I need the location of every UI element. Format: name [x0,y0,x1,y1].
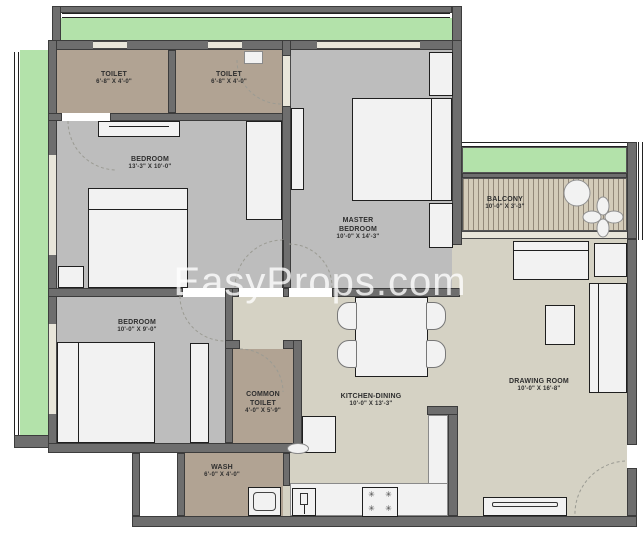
outer-wall-right-b [627,468,637,516]
toilets-bottom-wall-a [48,113,62,121]
room-label-master-bedroom: MASTER BEDROOM 10'-0" X 14'-3" [326,216,390,242]
wardrobe-2 [190,343,209,443]
sofa-long [589,283,627,393]
wash-outer-wall [132,453,140,516]
room-name: COMMON TOILET [237,390,289,408]
toilet-2-door-opening [282,56,291,106]
toilet-divider-wall [168,50,176,113]
wash-basin [287,443,309,454]
room-dims: 6'-8" X 4'-0" [96,79,132,87]
nightstand [58,266,84,288]
toilets-bottom-wall-b [110,113,285,121]
room-label-toilet-2: TOILET 6'-8" X 4'-0" [211,70,247,87]
room-label-toilet-1: TOILET 6'-8" X 4'-0" [96,70,132,87]
dining-chair [426,302,446,330]
master-nightstand-bottom [429,203,453,248]
washing-machine [248,487,281,516]
tv-unit [483,497,567,516]
room-dims: 10'-0" X 13'-3" [321,401,421,409]
dining-table [355,297,428,377]
room-name: KITCHEN-DINING [321,392,421,401]
room-label-drawing-room: DRAWING ROOM 10'-0" X 16'-8" [484,377,594,394]
room-label-bedroom-1: BEDROOM 13'-3" X 10'-0" [129,155,172,172]
balcony-garden-strip [462,147,627,173]
room-label-bedroom-2: BEDROOM 10'-0" X 9'-0" [117,318,156,335]
room-label-kitchen-dining: KITCHEN-DINING 10'-0" X 13'-3" [321,392,421,409]
bedroom2-bottom-wall [48,443,302,453]
room-name: BALCONY [485,195,524,204]
common-toilet-right-wall [293,340,302,452]
terrace-left-railing [14,52,19,435]
bedroom1-bedroom2-wall [48,288,183,297]
toilet-shelf [244,51,263,64]
terrace-garden-top [61,18,452,40]
wash-channel-wall [177,453,185,516]
master-right-wall [452,40,462,245]
common-toilet-top-wall-a [225,340,240,349]
dining-chair [337,302,357,330]
room-dims: 6'-0" X 4'-0" [204,472,240,480]
kitchen-drawing-wall-cap [427,406,458,415]
burner-icon: ✳ [385,491,392,499]
balcony-outer-railing [638,142,643,240]
main-door-opening [627,445,637,468]
wardrobe [246,121,282,220]
master-bed [352,98,452,201]
terrace-top-wall [60,6,452,13]
room-name: MASTER BEDROOM [326,216,390,234]
bedroom-1-window [48,155,57,255]
toilet-1-window [93,41,127,49]
master-nightstand-top [429,52,453,96]
outer-wall-bottom [132,516,637,527]
burner-icon: ✳ [368,505,375,513]
room-name: TOILET [96,70,132,79]
room-label-balcony: BALCONY 10'-0" X 3'-3" [485,195,524,212]
armchair [594,243,627,277]
room-name: DRAWING ROOM [484,377,594,386]
bedroom1-master-wall-a [282,40,291,56]
room-dims: 6'-8" X 4'-0" [211,79,247,87]
coffee-table [545,305,575,345]
room-dims: 13'-3" X 10'-0" [129,164,172,172]
dresser [98,121,180,137]
bed-2 [57,342,155,443]
master-bedroom-window [317,41,420,49]
wash-kitchen-wall [283,453,290,486]
dining-chair [337,340,357,368]
room-label-wash: WASH 6'-0" X 4'-0" [204,463,240,480]
room-dims: 10'-0" X 14'-3" [326,234,390,242]
burner-icon: ✳ [368,491,375,499]
floor-plan: ✳ ✳ ✳ ✳ TOILET 6'-8" X 4'-0" [0,0,644,534]
room-dims: 10'-0" X 3'-3" [485,204,524,212]
room-name: TOILET [211,70,247,79]
room-dims: 4'-0" X 5'-9" [237,408,289,416]
room-name: BEDROOM [129,155,172,164]
balcony-sliding-window [462,231,627,239]
bedroom-2-window [48,324,57,414]
room-label-common-toilet: COMMON TOILET 4'-0" X 5'-9" [237,390,289,416]
kitchen-sink [292,488,316,516]
burner-icon: ✳ [385,505,392,513]
outer-wall-right-a [627,239,637,445]
kitchen-drawing-wall [448,406,458,516]
bedroom2-right-wall [225,288,233,443]
toilet-2-window [208,41,242,49]
terrace-garden-left [20,50,48,435]
master-wardrobe [291,108,304,190]
balcony-right-cap [627,142,637,239]
room-dims: 10'-0" X 16'-8" [484,386,594,394]
sofa-two-seater [513,241,589,280]
room-dims: 10'-0" X 9'-0" [117,327,156,335]
room-name: BEDROOM [117,318,156,327]
stove: ✳ ✳ ✳ ✳ [362,487,398,517]
dining-chair [426,340,446,368]
room-name: WASH [204,463,240,472]
watermark: EasyProps.com [173,260,466,305]
